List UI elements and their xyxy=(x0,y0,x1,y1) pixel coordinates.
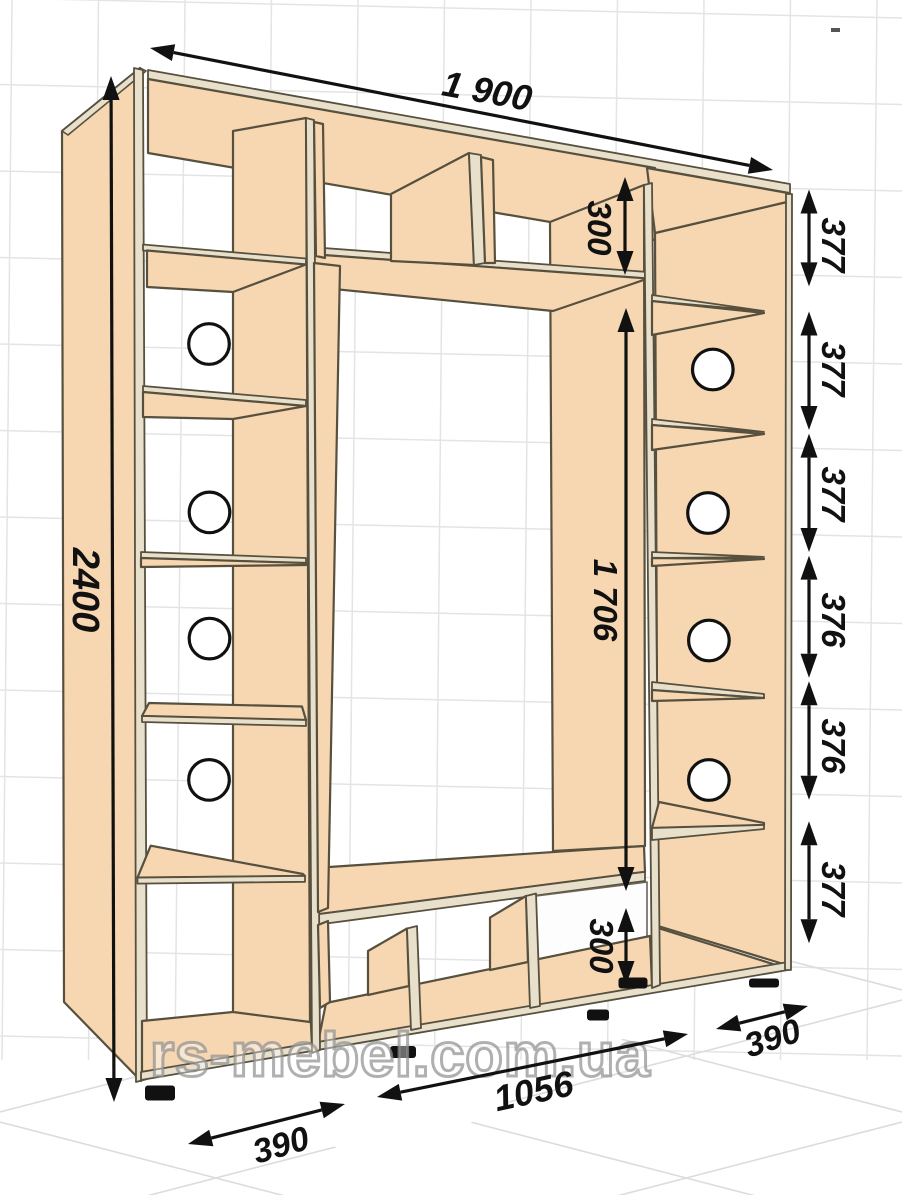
svg-text:377: 377 xyxy=(815,341,852,398)
svg-text:377: 377 xyxy=(815,217,852,274)
svg-text:376: 376 xyxy=(815,592,852,648)
svg-text:377: 377 xyxy=(815,861,852,918)
svg-text:377: 377 xyxy=(815,466,852,523)
svg-text:300: 300 xyxy=(581,200,618,256)
svg-text:2400: 2400 xyxy=(64,547,106,633)
svg-text:300: 300 xyxy=(583,918,620,974)
svg-text:1 706: 1 706 xyxy=(587,559,624,642)
svg-text:376: 376 xyxy=(815,718,852,774)
